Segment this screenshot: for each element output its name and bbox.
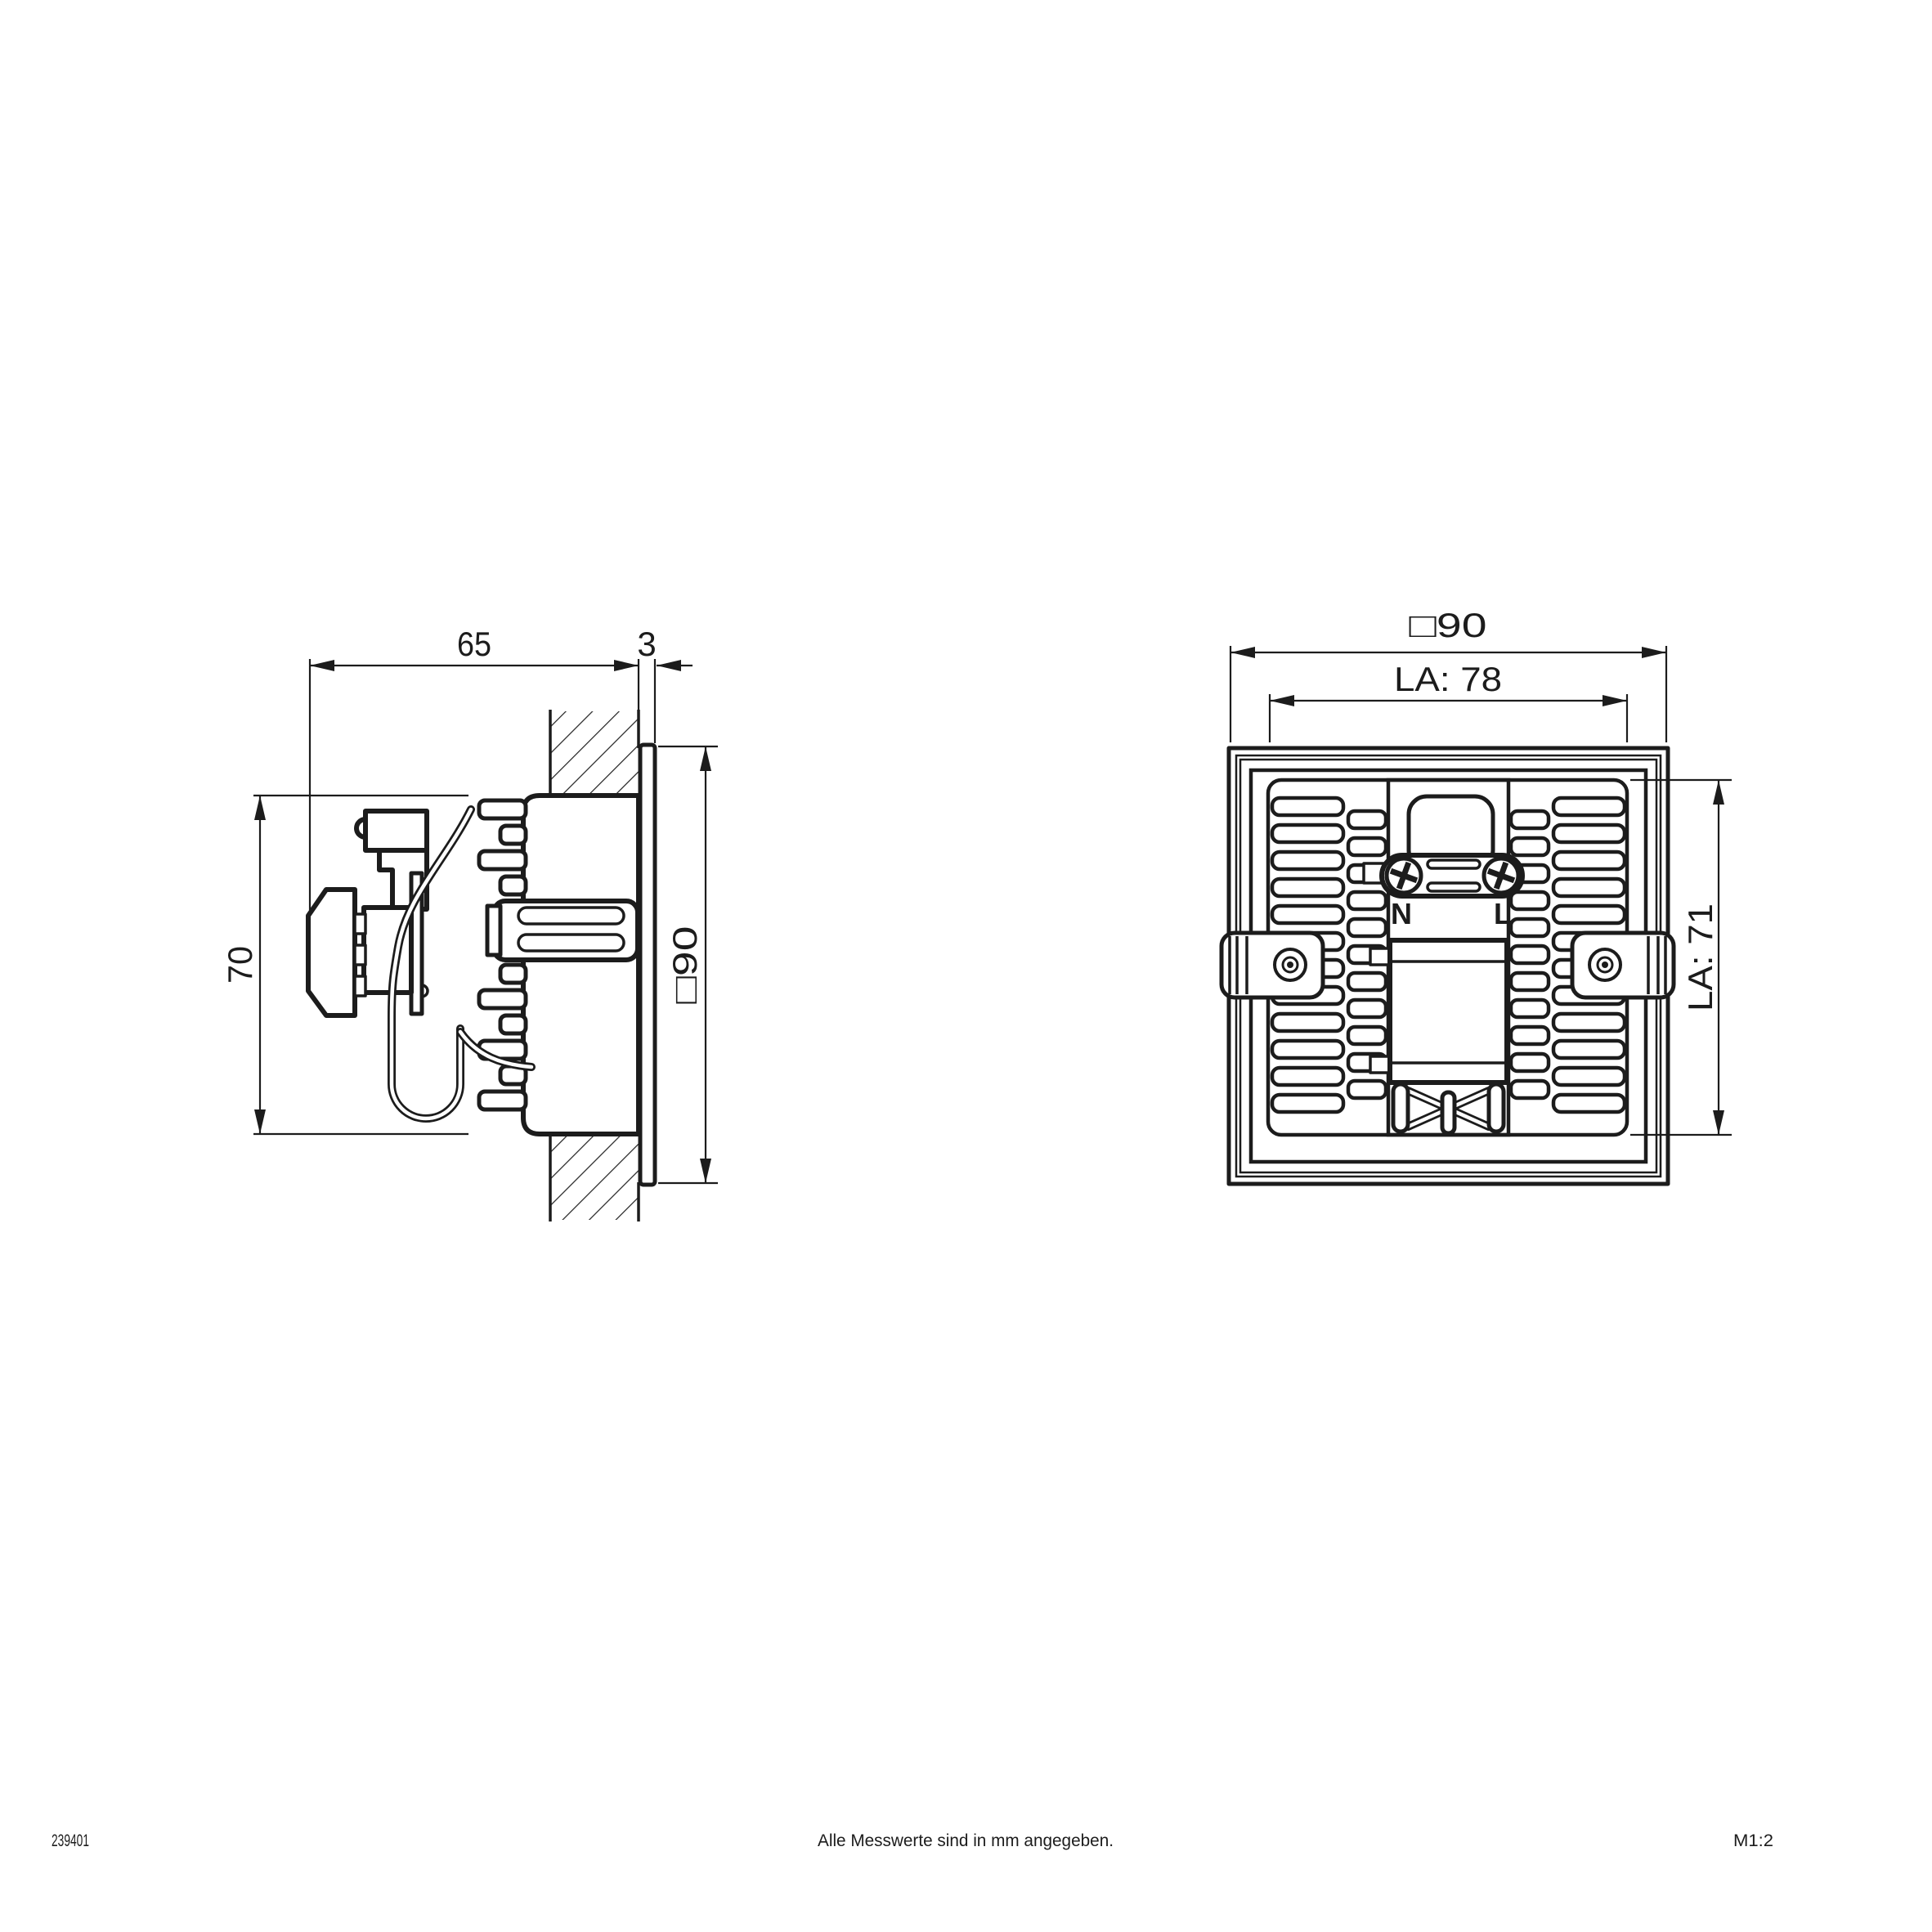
retaining-spring (1393, 1084, 1504, 1133)
heatsink-fin (1272, 1041, 1343, 1058)
dim-label-bezel: 3 (637, 625, 656, 663)
heatsink-fin (1348, 892, 1386, 909)
terminal-tab-1 (355, 914, 365, 934)
side-view: 65 3 □90 70 (221, 625, 718, 1222)
heatsink-fin (1272, 1014, 1343, 1031)
wall-hatch-top (550, 711, 639, 796)
technical-drawing-sheet: 65 3 □90 70 (0, 0, 1932, 1932)
heatsink-fin (500, 965, 526, 983)
rear-view: N L (1222, 606, 1732, 1184)
heatsink-fin (1348, 1027, 1386, 1044)
heatsink-fin (500, 826, 526, 844)
heatsink-fin (479, 990, 526, 1008)
heatsink-fin (1272, 852, 1343, 869)
heatsink-fin (1272, 798, 1343, 815)
wall-hatch-bottom (550, 1135, 639, 1220)
clip-screw-right-icon (1589, 949, 1620, 980)
terminal-slot-lower (1428, 883, 1480, 891)
driver-tab-upper (1370, 948, 1390, 965)
heatsink-fin (1348, 1081, 1386, 1098)
dim-label-recess: 70 (221, 946, 259, 984)
dim-label-cutout-width: LA: 78 (1394, 660, 1502, 698)
footer: 239401 Alle Messwerte sind in mm angegeb… (52, 1831, 1773, 1850)
terminal-tab-3 (355, 976, 365, 996)
heatsink-fin (1272, 906, 1343, 923)
clip-slot-upper (518, 908, 624, 924)
heatsink-fin (1553, 798, 1625, 815)
dim-label-depth: 65 (457, 625, 491, 663)
heatsink-fin (1511, 1000, 1549, 1017)
clip-screw-left-icon (1275, 949, 1306, 980)
heatsink-fin (500, 1015, 526, 1033)
drawing-scale: M1:2 (1733, 1831, 1773, 1850)
heatsink-fin (1511, 919, 1549, 936)
dim-label-face-rear: □90 (1410, 606, 1487, 644)
heatsink-fin (1553, 852, 1625, 869)
heatsink-fin (1553, 825, 1625, 842)
heatsink-fin (1511, 973, 1549, 990)
heatsink-fin (1553, 906, 1625, 923)
drawing-canvas: 65 3 □90 70 (0, 0, 1932, 1932)
dim-label-face-side: □90 (666, 926, 704, 1004)
heatsink-fin (479, 1092, 526, 1109)
heatsink-fin (1348, 919, 1386, 936)
heatsink-fin (1553, 1095, 1625, 1112)
screw-live-icon (1483, 858, 1519, 894)
mounting-clip-left (1222, 933, 1323, 997)
heatsink-fin (1511, 811, 1549, 828)
clip-end-plate (487, 906, 500, 955)
dim-label-cutout-height: LA: 71 (1681, 903, 1719, 1011)
dimension-bezel-3: 3 (637, 625, 693, 743)
units-note: Alle Messwerte sind in mm angegeben. (818, 1831, 1114, 1850)
sensor-head (308, 890, 355, 1015)
terminal-label-neutral: N (1391, 897, 1412, 930)
heatsink-fin (1348, 811, 1386, 828)
terminal-tab-2 (355, 945, 365, 965)
heatsink-fin (1348, 1000, 1386, 1017)
heatsink-fin (479, 851, 526, 869)
clip-slot-lower (518, 935, 624, 951)
switch-body (365, 811, 427, 850)
bezel-flange (640, 745, 655, 1185)
heatsink-fin (1553, 1041, 1625, 1058)
mounting-clip-right (1572, 933, 1674, 997)
screw-neutral-icon (1386, 858, 1422, 894)
heatsink-fin (1511, 1054, 1549, 1071)
heatsink-fin (1348, 838, 1386, 855)
heatsink-fin (1553, 1014, 1625, 1031)
housing-body (523, 796, 639, 1134)
heatsink-fin (1272, 1068, 1343, 1085)
heatsink-fin (1272, 879, 1343, 896)
heatsink-fin (1348, 973, 1386, 990)
terminal-label-live: L (1494, 897, 1512, 930)
driver-tab-lower (1370, 1056, 1390, 1073)
dimension-cutout-width: LA: 78 (1270, 660, 1627, 742)
heatsink-fin (1272, 825, 1343, 842)
heatsink-fin (1511, 1027, 1549, 1044)
heatsink-fin (500, 876, 526, 894)
terminal-slot-upper (1428, 860, 1480, 868)
heatsink-fin (1511, 946, 1549, 963)
heatsink-fin (1272, 1095, 1343, 1112)
heatsink-fin (1553, 1068, 1625, 1085)
heatsink-fin (1511, 838, 1549, 855)
heatsink-fin (479, 800, 526, 818)
driver-box-rear (1390, 940, 1507, 1083)
dimension-face-90-side: □90 (658, 746, 718, 1183)
heatsink-fin (1553, 879, 1625, 896)
heatsink-fin (1511, 892, 1549, 909)
article-number: 239401 (52, 1831, 89, 1850)
heatsink-fin (1511, 1081, 1549, 1098)
